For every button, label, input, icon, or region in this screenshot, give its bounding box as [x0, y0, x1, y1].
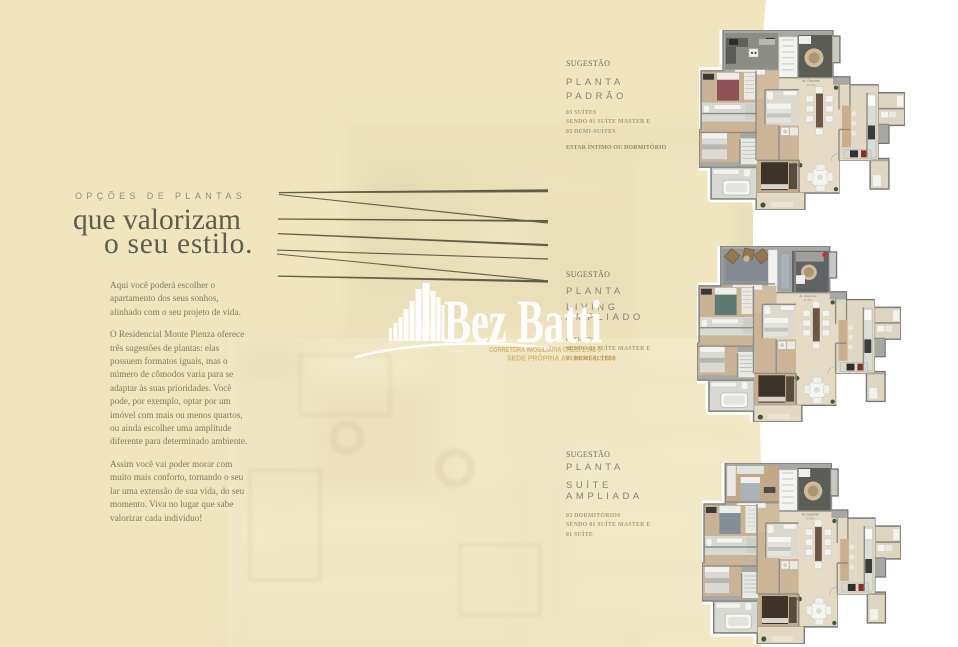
svg-text:41.70m: 41.70m — [806, 516, 814, 520]
svg-text:41.70m: 41.70m — [807, 83, 816, 87]
svg-text:Ar. Gourmet: Ar. Gourmet — [802, 79, 819, 83]
svg-text:SEDE PRÓPRIA AV. BRASIL 1500: SEDE PRÓPRIA AV. BRASIL 1500 — [507, 354, 616, 363]
svg-text:Ar. Gourmet: Ar. Gourmet — [802, 512, 819, 516]
svg-text:Ar. Gourmet: Ar. Gourmet — [799, 294, 816, 298]
svg-text:41.70m: 41.70m — [804, 298, 813, 302]
